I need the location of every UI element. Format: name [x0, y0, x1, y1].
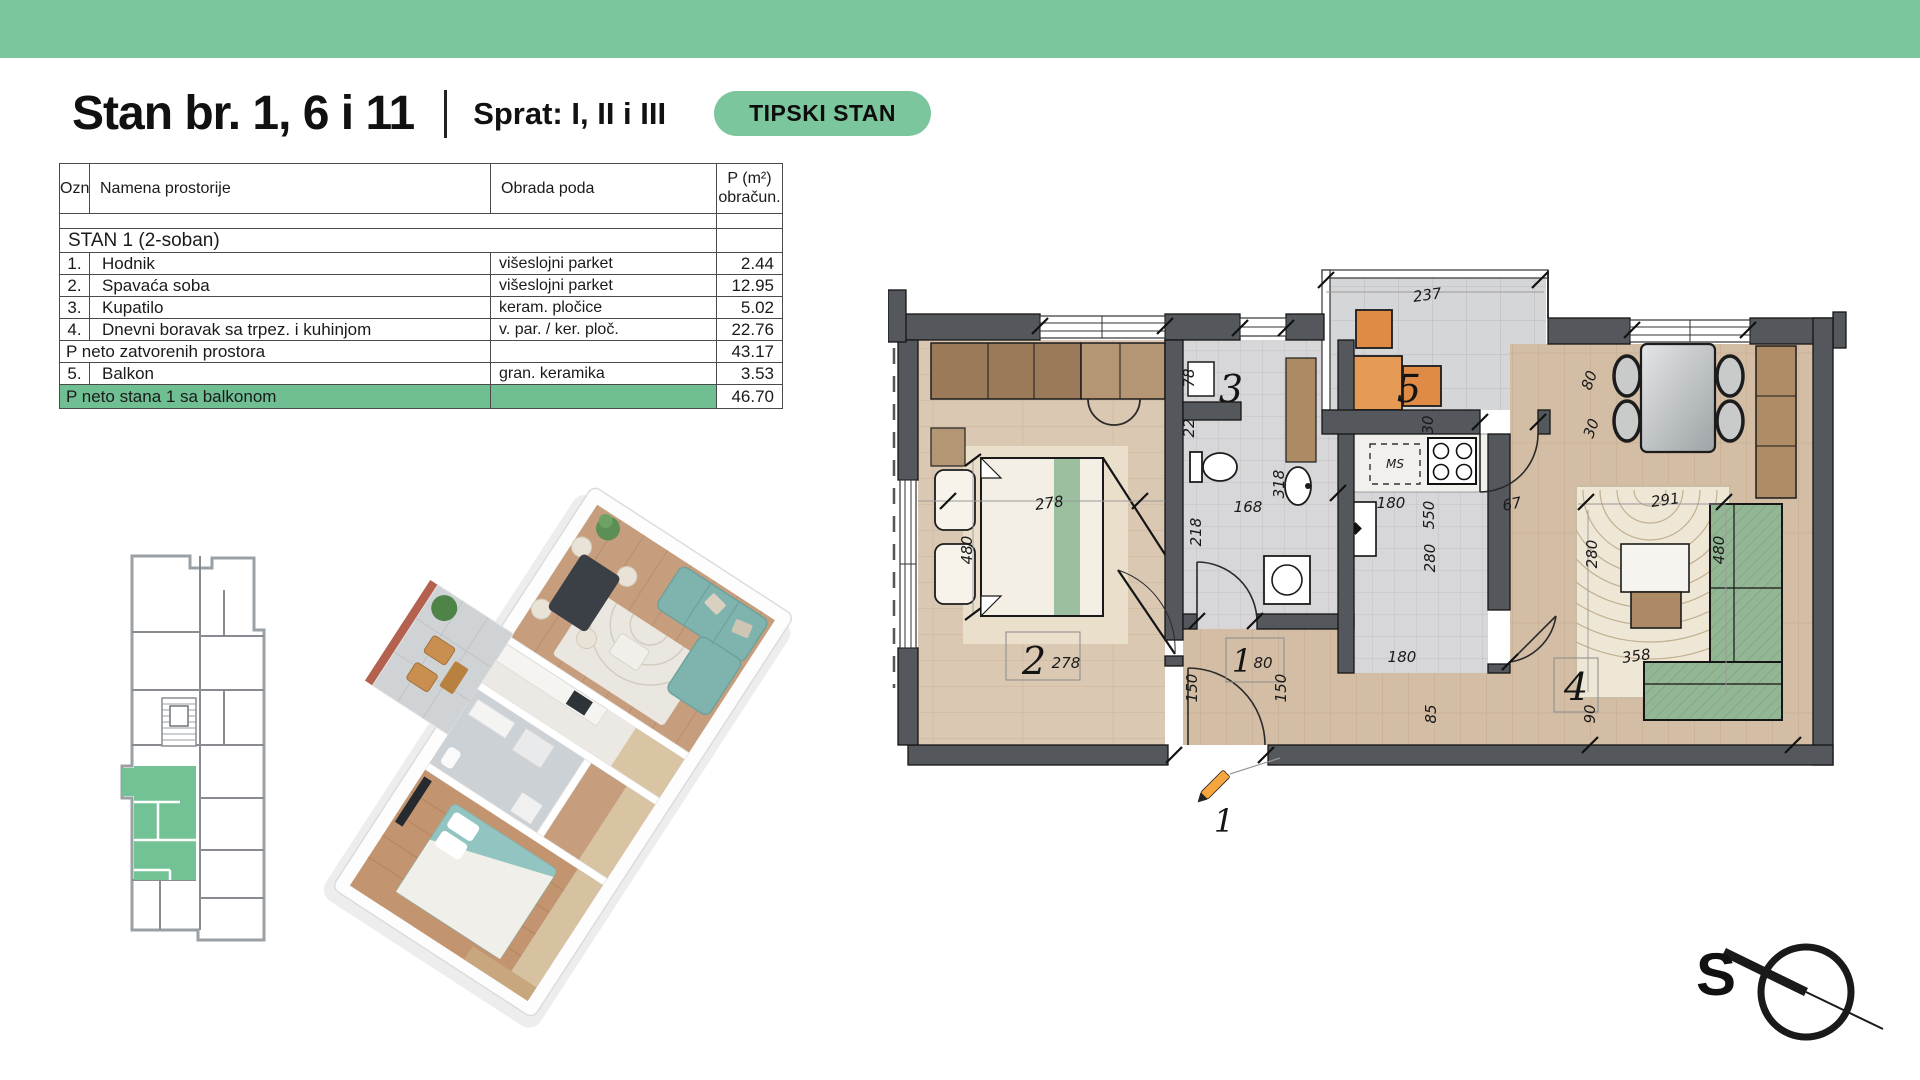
sideboard	[1756, 346, 1796, 498]
subtotal-row: P neto zatvorenih prostora 43.17	[60, 341, 783, 363]
sofa-chaise	[1644, 662, 1782, 720]
dim-bath-width: 168	[1234, 498, 1263, 516]
dim-rug-depth: 280	[1583, 540, 1601, 569]
toilet-tank	[1190, 452, 1202, 482]
col-ozn: Ozn.	[60, 164, 90, 214]
bed-runner	[1054, 459, 1080, 615]
row1-ozn: 1.	[60, 253, 90, 275]
row1-area: 2.44	[717, 253, 783, 275]
dining-chair	[1717, 356, 1743, 396]
nightstand	[935, 470, 975, 530]
table-header-row: Ozn. Namena prostorije Obrada poda P (m²…	[60, 164, 783, 214]
dining-chair	[1717, 401, 1743, 441]
highlighted-unit	[134, 766, 196, 880]
bath-vanity	[1286, 358, 1316, 462]
row3-floor: keram. pločice	[491, 297, 717, 319]
room-label-balcony: 5	[1397, 367, 1421, 411]
dim-kitchen-depth: 550	[1420, 501, 1438, 530]
compass-north-label: S	[1696, 941, 1736, 1008]
row4-area: 22.76	[717, 319, 783, 341]
dim-bath-sink: 318	[1270, 470, 1288, 499]
balcony-area: 3.53	[717, 363, 783, 385]
dim-kitchen-lower: 280	[1421, 544, 1439, 573]
col-name: Namena prostorije	[90, 164, 491, 214]
pencil-icon	[1200, 770, 1230, 800]
dresser	[931, 428, 965, 466]
coffee-table-wood	[1631, 592, 1681, 628]
col-floor: Obrada poda	[491, 164, 717, 214]
dim-kitchen-width: 180	[1377, 494, 1406, 512]
dim-bath-shelf: 78	[1180, 368, 1198, 387]
compass: S	[1678, 903, 1908, 1053]
total-row: P neto stana 1 sa balkonom 46.70	[60, 385, 783, 409]
render-3d	[322, 436, 792, 1056]
building-key-plan	[100, 540, 270, 950]
row2-ozn: 2.	[60, 275, 90, 297]
row3-name: Kupatilo	[90, 297, 491, 319]
dining-chair	[1614, 401, 1640, 441]
room-label-bath: 3	[1219, 367, 1243, 411]
row2-area: 12.95	[717, 275, 783, 297]
bed	[981, 458, 1103, 616]
building-outline	[122, 556, 264, 940]
table-row: 1. Hodnik višeslojni parket 2.44	[60, 253, 783, 275]
balcony-floor: gran. keramika	[491, 363, 717, 385]
dim-bath-depth: 218	[1187, 518, 1205, 547]
entrance-pointer-line	[1230, 758, 1280, 774]
dim-sofa-len: 480	[1710, 536, 1728, 565]
subtotal-label: P neto zatvorenih prostora	[60, 341, 491, 363]
row3-ozn: 3.	[60, 297, 90, 319]
page: Stan br. 1, 6 i 11 Sprat: I, II i III TI…	[0, 0, 1920, 1080]
dim-hall-b: 150	[1272, 674, 1290, 703]
row2-floor: višeslojni parket	[491, 275, 717, 297]
col-area: P (m²) obračun.	[717, 164, 783, 214]
top-accent-bar	[0, 0, 1920, 58]
dim-hall-len: 180	[1388, 648, 1417, 666]
dim-bed-len: 480	[958, 536, 976, 565]
dining-table	[1641, 344, 1715, 452]
entrance-number: 1	[1214, 802, 1234, 840]
row4-floor: v. par. / ker. ploč.	[491, 319, 717, 341]
row4-name: Dnevni boravak sa trpez. i kuhinjom	[90, 319, 491, 341]
row3-area: 5.02	[717, 297, 783, 319]
compass-needle-thin	[1806, 992, 1883, 1029]
header: Stan br. 1, 6 i 11 Sprat: I, II i III TI…	[72, 86, 931, 141]
table-row: 4. Dnevni boravak sa trpez. i kuhinjom v…	[60, 319, 783, 341]
spacer-row	[60, 214, 783, 229]
coffee-table	[1621, 544, 1689, 592]
label-ms: MS	[1386, 457, 1404, 471]
row1-floor: višeslojni parket	[491, 253, 717, 275]
dining-chair	[1614, 356, 1640, 396]
total-label: P neto stana 1 sa balkonom	[60, 385, 491, 409]
room-label-bedroom: 2	[1021, 639, 1046, 683]
room-label-living: 4	[1563, 665, 1588, 709]
wardrobe	[931, 343, 1081, 399]
balcony-stool	[1356, 310, 1392, 348]
page-title: Stan br. 1, 6 i 11	[72, 86, 414, 141]
balcony-name: Balkon	[90, 363, 491, 385]
dim-bath-jog: 22	[1180, 418, 1198, 437]
row2-name: Spavaća soba	[90, 275, 491, 297]
sink-tap	[1305, 483, 1311, 489]
floor-plan: 237 5 30 80 30 78 3 22 218 168 318 MS 18…	[888, 218, 1848, 878]
section-row: STAN 1 (2-soban)	[60, 229, 783, 253]
col-area-line1: P (m²)	[717, 170, 782, 188]
row4-ozn: 4.	[60, 319, 90, 341]
total-area: 46.70	[717, 385, 783, 409]
room-label-hall: 1	[1232, 642, 1252, 680]
table-row: 3. Kupatilo keram. pločice 5.02	[60, 297, 783, 319]
dim-hall: 80	[1253, 654, 1272, 672]
elevator	[170, 706, 188, 726]
highlighted-unit-balcony	[122, 768, 134, 796]
wardrobe-2	[1081, 343, 1165, 399]
toilet-bowl	[1203, 453, 1237, 481]
section-label: STAN 1 (2-soban)	[60, 229, 717, 253]
sofa	[1710, 504, 1782, 668]
washing-machine	[1264, 556, 1310, 604]
entrance-marker: 1	[1194, 758, 1280, 840]
dim-hall-a: 150	[1183, 674, 1201, 703]
floor-subtitle: Sprat: I, II i III	[473, 96, 666, 132]
table-row: 2. Spavaća soba višeslojni parket 12.95	[60, 275, 783, 297]
dim-bedroom-label: 278	[1052, 654, 1081, 672]
row1-name: Hodnik	[90, 253, 491, 275]
balcony-rail-top	[1322, 270, 1548, 278]
typical-unit-badge: TIPSKI STAN	[714, 91, 931, 136]
area-table: Ozn. Namena prostorije Obrada poda P (m²…	[59, 163, 783, 409]
dim-hall-gap: 85	[1422, 704, 1440, 723]
balcony-ozn: 5.	[60, 363, 90, 385]
title-divider	[444, 90, 447, 138]
balcony-row: 5. Balkon gran. keramika 3.53	[60, 363, 783, 385]
compass-needle-thick	[1724, 952, 1806, 992]
dim-balcony-wall: 30	[1419, 415, 1437, 434]
subtotal-area: 43.17	[717, 341, 783, 363]
col-area-line2: obračun.	[717, 189, 782, 207]
